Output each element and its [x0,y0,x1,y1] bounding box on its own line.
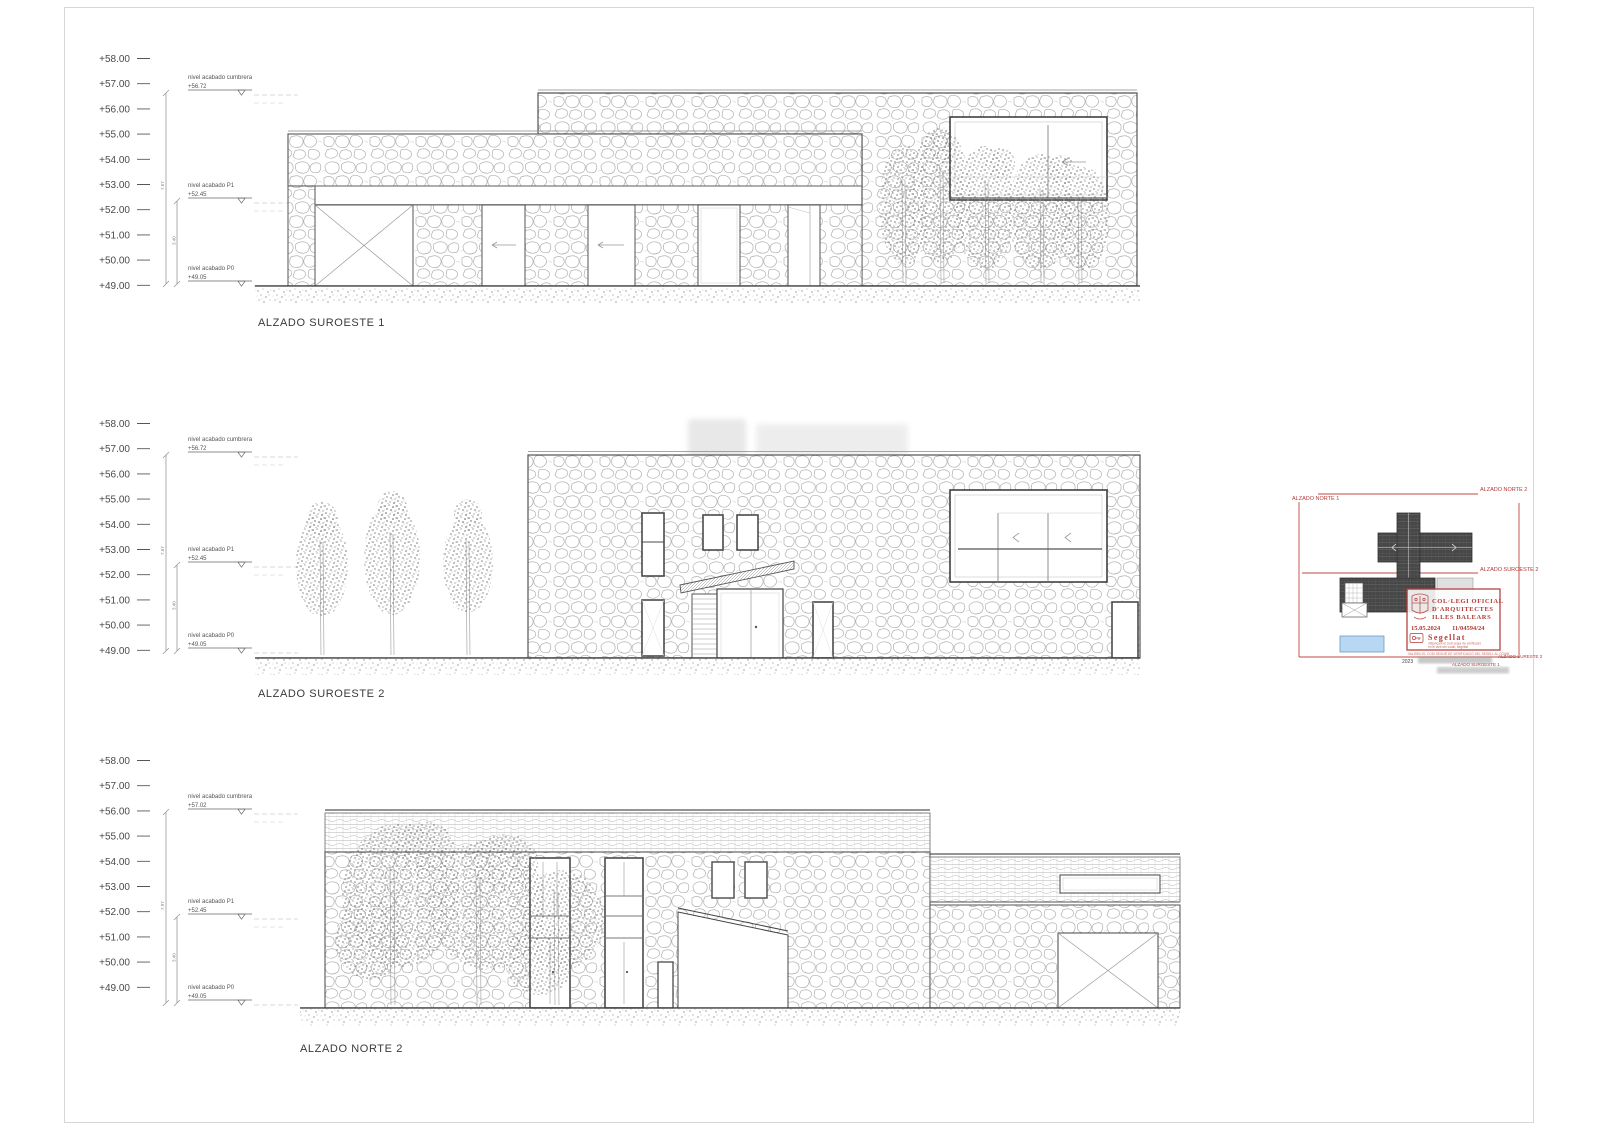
scale-label: +57.00 [99,781,130,792]
scale-label: +58.00 [99,756,130,767]
tall-window-door [605,858,643,1008]
level-label: nivel acabado cumbrera [188,75,253,81]
garage-door [315,205,413,286]
scale-label: +53.00 [99,545,130,556]
scale-label: +54.00 [99,155,130,166]
level-value: +49.05 [188,275,207,281]
level-label: nivel acabado cumbrera [188,794,253,800]
redacted-text-bar [1418,657,1492,664]
narrow-door [658,962,673,1008]
scale-label: +54.00 [99,857,130,868]
scale-label: +55.00 [99,495,130,506]
scale-label: +49.00 [99,646,130,657]
level-label: nivel acabado P1 [188,899,235,905]
level-label: nivel acabado P0 [188,633,235,639]
level-label: nivel acabado cumbrera [188,437,253,443]
scale-label: +50.00 [99,256,130,267]
door [698,205,740,286]
scale-label: +58.00 [99,419,130,430]
stone-band [288,134,862,186]
level-value: +57.02 [188,803,207,809]
scale-label: +51.00 [99,595,130,606]
scale-label: +49.00 [99,983,130,994]
stamp-small-line2: en el web del coaib, segellat [1428,645,1468,649]
scale-label: +56.00 [99,469,130,480]
dim-text: 3.40 [172,953,177,962]
small-window [712,862,734,898]
small-window [745,862,767,898]
window [642,513,664,576]
scale-label: +53.00 [99,882,130,893]
scale-label: +54.00 [99,520,130,531]
louver-panel [692,594,717,658]
level-value: +52.45 [188,908,207,914]
scale-label: +55.00 [99,832,130,843]
drawing-sheet: +58.00 +57.00 +56.00 +55.00 +54.00 +53.0… [0,0,1600,1130]
level-value: +49.05 [188,642,207,648]
door [588,205,635,286]
scale-label: +53.00 [99,180,130,191]
scale-label: +57.00 [99,444,130,455]
level-label: nivel acabado P0 [188,985,235,991]
level-value: +52.45 [188,556,207,562]
keyplan-label-norte1: ALZADO NORTE 1 [1292,496,1339,502]
door [482,205,525,286]
project-year: 2023 [1402,659,1413,665]
skylight [1345,583,1363,603]
door-opening [788,205,820,286]
door-handle-icon [755,626,757,628]
dim-text: 3.40 [172,236,177,245]
scale-label: +51.00 [99,230,130,241]
stone-pier [288,186,315,286]
scale-label: +52.00 [99,205,130,216]
elevation-title: ALZADO SUROESTE 1 [258,317,385,329]
scale-label: +55.00 [99,130,130,141]
stamp-org-line3: ILLES BALEARS [1432,614,1491,621]
level-label: nivel acabado P0 [188,266,235,272]
stamp: COL·LEGI OFICIAL D'ARQUITECTES ILLES BAL… [1407,589,1509,656]
window [703,515,723,550]
scale-label: +56.00 [99,104,130,115]
dim-text: 7.97 [160,901,165,910]
entrance-door [717,589,783,658]
stamp-org-line1: COL·LEGI OFICIAL [1432,598,1504,605]
ground-hatch [255,287,1140,304]
keyplan-label-norte2: ALZADO NORTE 2 [1480,487,1527,493]
level-value: +49.05 [188,994,207,1000]
stamp-number: 11/04594/24 [1452,625,1485,632]
keyplan-label-suroeste2: ALZADO SUROESTE 2 [1480,567,1538,573]
window [813,602,833,658]
level-value: +56.72 [188,446,207,452]
slot-window [1060,875,1160,893]
pool [1340,636,1384,652]
ground-hatch [300,1009,1180,1026]
dim-text: 7.67 [160,181,165,190]
level-value: +56.72 [188,84,207,90]
dim-text: 3.40 [172,601,177,610]
level-label: nivel acabado P1 [188,183,235,189]
scale-label: +49.00 [99,281,130,292]
ground-hatch [255,659,1140,675]
scale-label: +51.00 [99,932,130,943]
redacted-text-bar [1437,667,1509,674]
elevation-title: ALZADO NORTE 2 [300,1043,403,1055]
scale-label: +52.00 [99,907,130,918]
dim-text: 7.67 [160,546,165,555]
scale-label: +56.00 [99,806,130,817]
scale-label: +58.00 [99,54,130,65]
roof-hatch-box [1342,603,1367,617]
stamp-footer: VALIDEU EL CODI SEGUR DE VERIFICACIÓ DEL… [1408,651,1509,656]
stamp-org-line2: D'ARQUITECTES [1432,606,1494,613]
scale-label: +57.00 [99,79,130,90]
annex-volume [930,854,1180,1008]
elevation-title: ALZADO SUROESTE 2 [258,688,385,700]
scale-label: +52.00 [99,570,130,581]
level-value: +52.45 [188,192,207,198]
scale-label: +50.00 [99,958,130,969]
window [737,515,758,550]
level-label: nivel acabado P1 [188,547,235,553]
garage-door [1058,933,1158,1008]
stamp-date: 15.05.2024 [1411,625,1441,632]
scale-label: +50.00 [99,621,130,632]
window [642,600,664,656]
door-handle-icon [626,971,628,973]
large-window [950,490,1107,582]
window [1112,602,1138,658]
